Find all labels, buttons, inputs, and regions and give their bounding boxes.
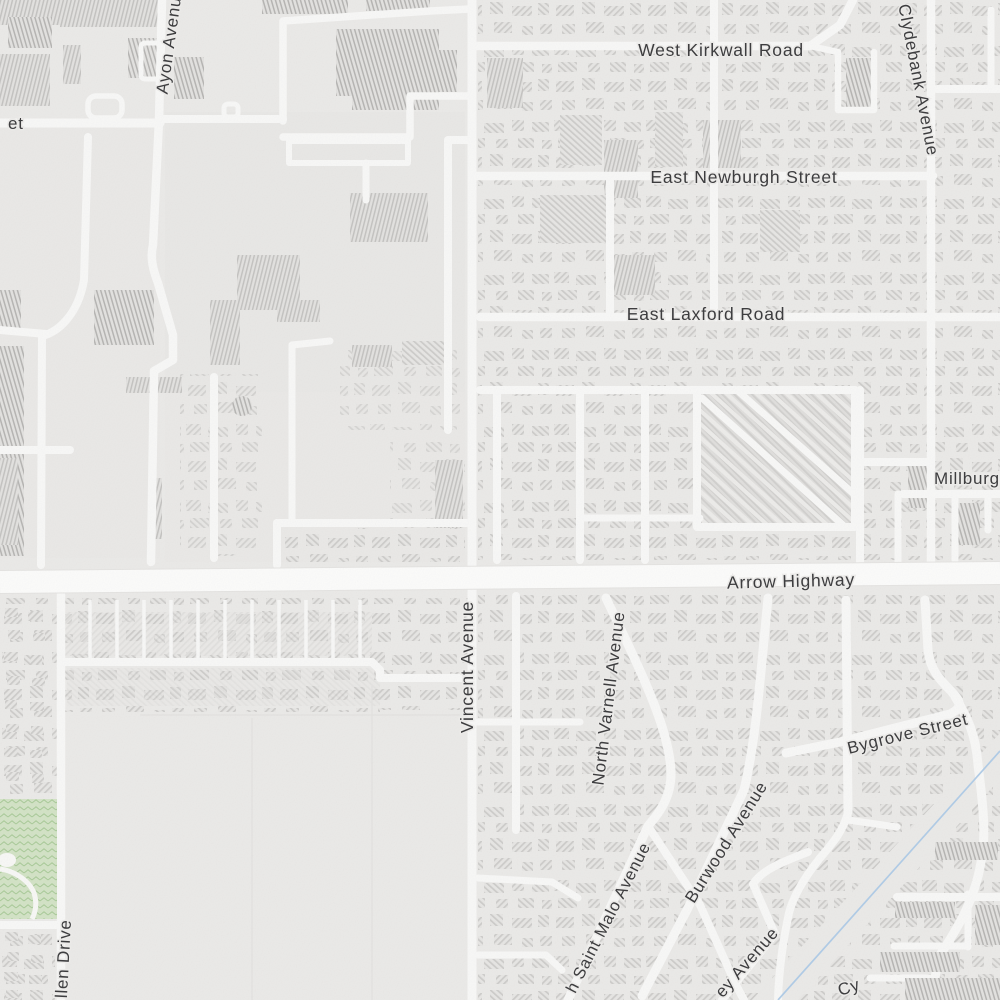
- svg-text:Arrow Highway: Arrow Highway: [727, 569, 856, 592]
- svg-text:Vincent Avenue: Vincent Avenue: [457, 601, 477, 733]
- svg-text:West Kirkwall Road: West Kirkwall Road: [638, 40, 804, 60]
- svg-text:East Newburgh Street: East Newburgh Street: [650, 167, 837, 187]
- svg-text:East Laxford Road: East Laxford Road: [627, 304, 786, 324]
- svg-text:et: et: [8, 114, 24, 133]
- svg-text:Millburgh: Millburgh: [934, 469, 1000, 488]
